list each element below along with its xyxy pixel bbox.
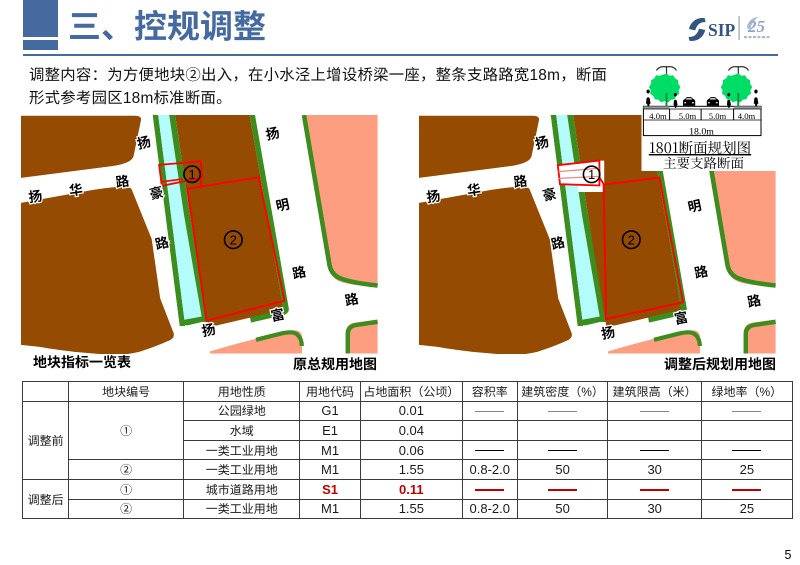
svg-text:2: 2 [230, 232, 237, 247]
svg-text:华: 华 [68, 178, 84, 200]
svg-text:1: 1 [588, 167, 595, 182]
svg-text:路: 路 [513, 169, 530, 191]
svg-text:路: 路 [549, 230, 567, 253]
svg-text:扬: 扬 [135, 130, 153, 153]
svg-text:4.0m: 4.0m [649, 111, 667, 121]
svg-text:路: 路 [291, 260, 309, 282]
svg-text:4.0m: 4.0m [738, 111, 756, 121]
svg-text:SIP: SIP [708, 20, 736, 40]
svg-text:扬: 扬 [533, 130, 551, 153]
svg-text:路: 路 [115, 169, 132, 191]
svg-text:25: 25 [747, 17, 766, 36]
svg-text:豪: 豪 [540, 182, 558, 205]
svg-text:5.0m: 5.0m [679, 111, 697, 121]
svg-text:2: 2 [628, 232, 635, 247]
svg-text:5.0m: 5.0m [709, 111, 727, 121]
svg-text:明: 明 [274, 193, 291, 215]
svg-text:路: 路 [343, 287, 361, 309]
svg-text:扬: 扬 [264, 121, 281, 143]
svg-text:18.0m: 18.0m [689, 127, 714, 138]
svg-text:主要支路断面: 主要支路断面 [663, 152, 744, 172]
svg-text:1: 1 [189, 167, 196, 182]
svg-text:扬: 扬 [28, 184, 44, 206]
svg-text:路: 路 [693, 260, 711, 282]
svg-text:华: 华 [466, 178, 482, 200]
svg-text:扬: 扬 [426, 184, 442, 206]
svg-text:明: 明 [686, 194, 703, 216]
svg-text:富: 富 [673, 306, 690, 328]
svg-text:路: 路 [746, 289, 764, 311]
